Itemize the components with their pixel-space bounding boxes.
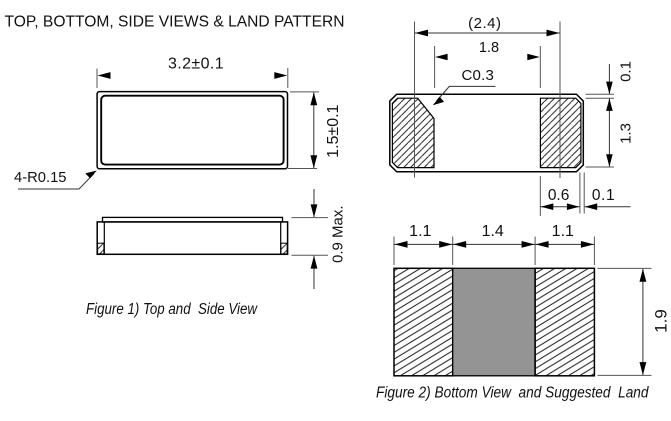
svg-text:0.1: 0.1 <box>592 187 615 204</box>
svg-text:Figure 2) Bottom View and Sug: Figure 2) Bottom View and Suggested Land <box>376 385 650 402</box>
svg-text:Figure 1) Top and Side View: Figure 1) Top and Side View <box>86 301 259 318</box>
svg-text:TOP, BOTTOM, SIDE VIEWS & LAND: TOP, BOTTOM, SIDE VIEWS & LAND PATTERN <box>5 14 345 31</box>
svg-text:1.3: 1.3 <box>618 123 635 144</box>
svg-text:0.6: 0.6 <box>548 187 570 204</box>
svg-text:0.1: 0.1 <box>618 61 635 82</box>
svg-text:1.1: 1.1 <box>409 223 431 240</box>
svg-text:0.9 Max.: 0.9 Max. <box>330 205 347 263</box>
svg-text:1.5±0.1: 1.5±0.1 <box>325 104 342 157</box>
svg-text:1.9: 1.9 <box>652 309 671 333</box>
svg-text:(2.4): (2.4) <box>468 15 501 32</box>
svg-text:4-R0.15: 4-R0.15 <box>14 169 67 186</box>
svg-text:3.2±0.1: 3.2±0.1 <box>168 56 224 73</box>
svg-text:1.1: 1.1 <box>552 223 574 240</box>
svg-text:1.4: 1.4 <box>482 223 504 240</box>
svg-text:1.8: 1.8 <box>479 40 499 56</box>
svg-text:C0.3: C0.3 <box>462 67 495 84</box>
